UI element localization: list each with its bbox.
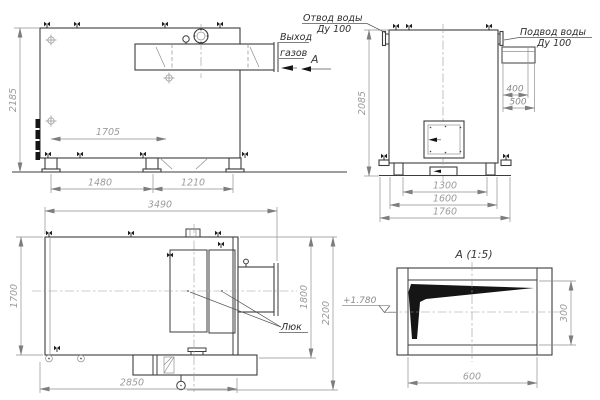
anchor-foot bbox=[501, 160, 511, 166]
valve-icon bbox=[217, 22, 223, 28]
gas-flow-arrow-icon bbox=[281, 65, 293, 71]
anchor-bolt-icon bbox=[503, 154, 509, 160]
top-flange-plan bbox=[186, 229, 200, 237]
dim-400: 400 bbox=[506, 85, 523, 95]
valve-icon bbox=[44, 22, 50, 28]
valve-icon bbox=[215, 231, 221, 237]
ladder-bracket bbox=[36, 119, 41, 128]
handwheel-icon bbox=[46, 355, 53, 362]
dim-1700: 1700 bbox=[9, 284, 20, 308]
section-view-arrow-icon bbox=[301, 66, 311, 71]
valve-icon bbox=[486, 24, 492, 30]
dim-1210: 1210 bbox=[181, 178, 205, 189]
valve-icon bbox=[46, 231, 52, 237]
inlet-pipe-channel bbox=[502, 47, 535, 63]
gas-duct-side bbox=[135, 44, 274, 70]
anchor-foot bbox=[379, 160, 389, 166]
drawing-canvas: 2185 1705 1480 1210 Выход газов А bbox=[0, 0, 600, 400]
water-inlet-flange bbox=[500, 32, 503, 46]
gas-outlet-label-1: Выход bbox=[280, 32, 312, 43]
dim-1600: 1600 bbox=[433, 194, 457, 205]
elevation-mark-text: +1.780 bbox=[343, 296, 377, 306]
front-leg bbox=[486, 163, 495, 175]
plan-view: Люк 3490 1700 1800 2200 2850 bbox=[9, 200, 338, 394]
dim-600: 600 bbox=[463, 372, 481, 383]
valve-icon bbox=[162, 22, 168, 28]
dim-2085: 2085 bbox=[357, 91, 368, 115]
dim-1760: 1760 bbox=[433, 207, 457, 218]
front-view: 2085 400 500 1300 1600 1760 Отвод воды Д… bbox=[302, 13, 592, 222]
boiler-technical-drawing: 2185 1705 1480 1210 Выход газов А bbox=[0, 0, 600, 400]
valve-icon bbox=[406, 24, 412, 30]
water-outlet-label-1: Отвод воды bbox=[303, 13, 363, 24]
flanged-port-icon bbox=[194, 29, 208, 43]
hatch-label: Люк bbox=[280, 322, 302, 333]
dim-3490: 3490 bbox=[148, 200, 172, 211]
dim-1300: 1300 bbox=[433, 181, 457, 192]
water-inlet-label-1: Подвод воды bbox=[520, 27, 587, 38]
handwheel-icon bbox=[78, 355, 85, 362]
water-outlet-label-2: Ду 100 bbox=[316, 24, 351, 35]
valve-icon bbox=[74, 22, 80, 28]
valve-icon bbox=[128, 231, 134, 237]
dim-2850: 2850 bbox=[120, 378, 144, 389]
support-leg bbox=[229, 158, 241, 169]
dim-2200: 2200 bbox=[321, 301, 332, 325]
dim-500: 500 bbox=[509, 98, 526, 108]
valve-icon bbox=[393, 24, 399, 30]
gas-outlet-label-2: газов bbox=[280, 48, 308, 59]
burner-platform bbox=[133, 355, 257, 375]
anchor-bolt-icon bbox=[381, 154, 387, 160]
fitting-icon bbox=[244, 259, 249, 264]
gas-duct-plan bbox=[238, 267, 274, 312]
water-inlet-label-2: Ду 100 bbox=[536, 38, 571, 49]
gas-outlet-callout: Выход газов А bbox=[279, 32, 331, 72]
detail-title: А (1:5) bbox=[454, 248, 492, 261]
detail-a-view: А (1:5) 300 600 +1.780 bbox=[342, 248, 576, 388]
section-letter: А bbox=[310, 53, 319, 66]
water-outlet-flange bbox=[383, 32, 386, 46]
dim-1800: 1800 bbox=[299, 285, 310, 309]
dim-1480: 1480 bbox=[88, 178, 112, 189]
dim-2185: 2185 bbox=[8, 88, 19, 112]
dim-1705: 1705 bbox=[96, 127, 120, 138]
front-leg bbox=[394, 163, 403, 175]
support-leg bbox=[146, 158, 158, 169]
duct-section-outline bbox=[397, 268, 552, 355]
dim-300: 300 bbox=[559, 304, 570, 322]
support-leg bbox=[45, 158, 57, 169]
level-mark-icon bbox=[379, 306, 390, 313]
valve-icon bbox=[242, 152, 248, 158]
